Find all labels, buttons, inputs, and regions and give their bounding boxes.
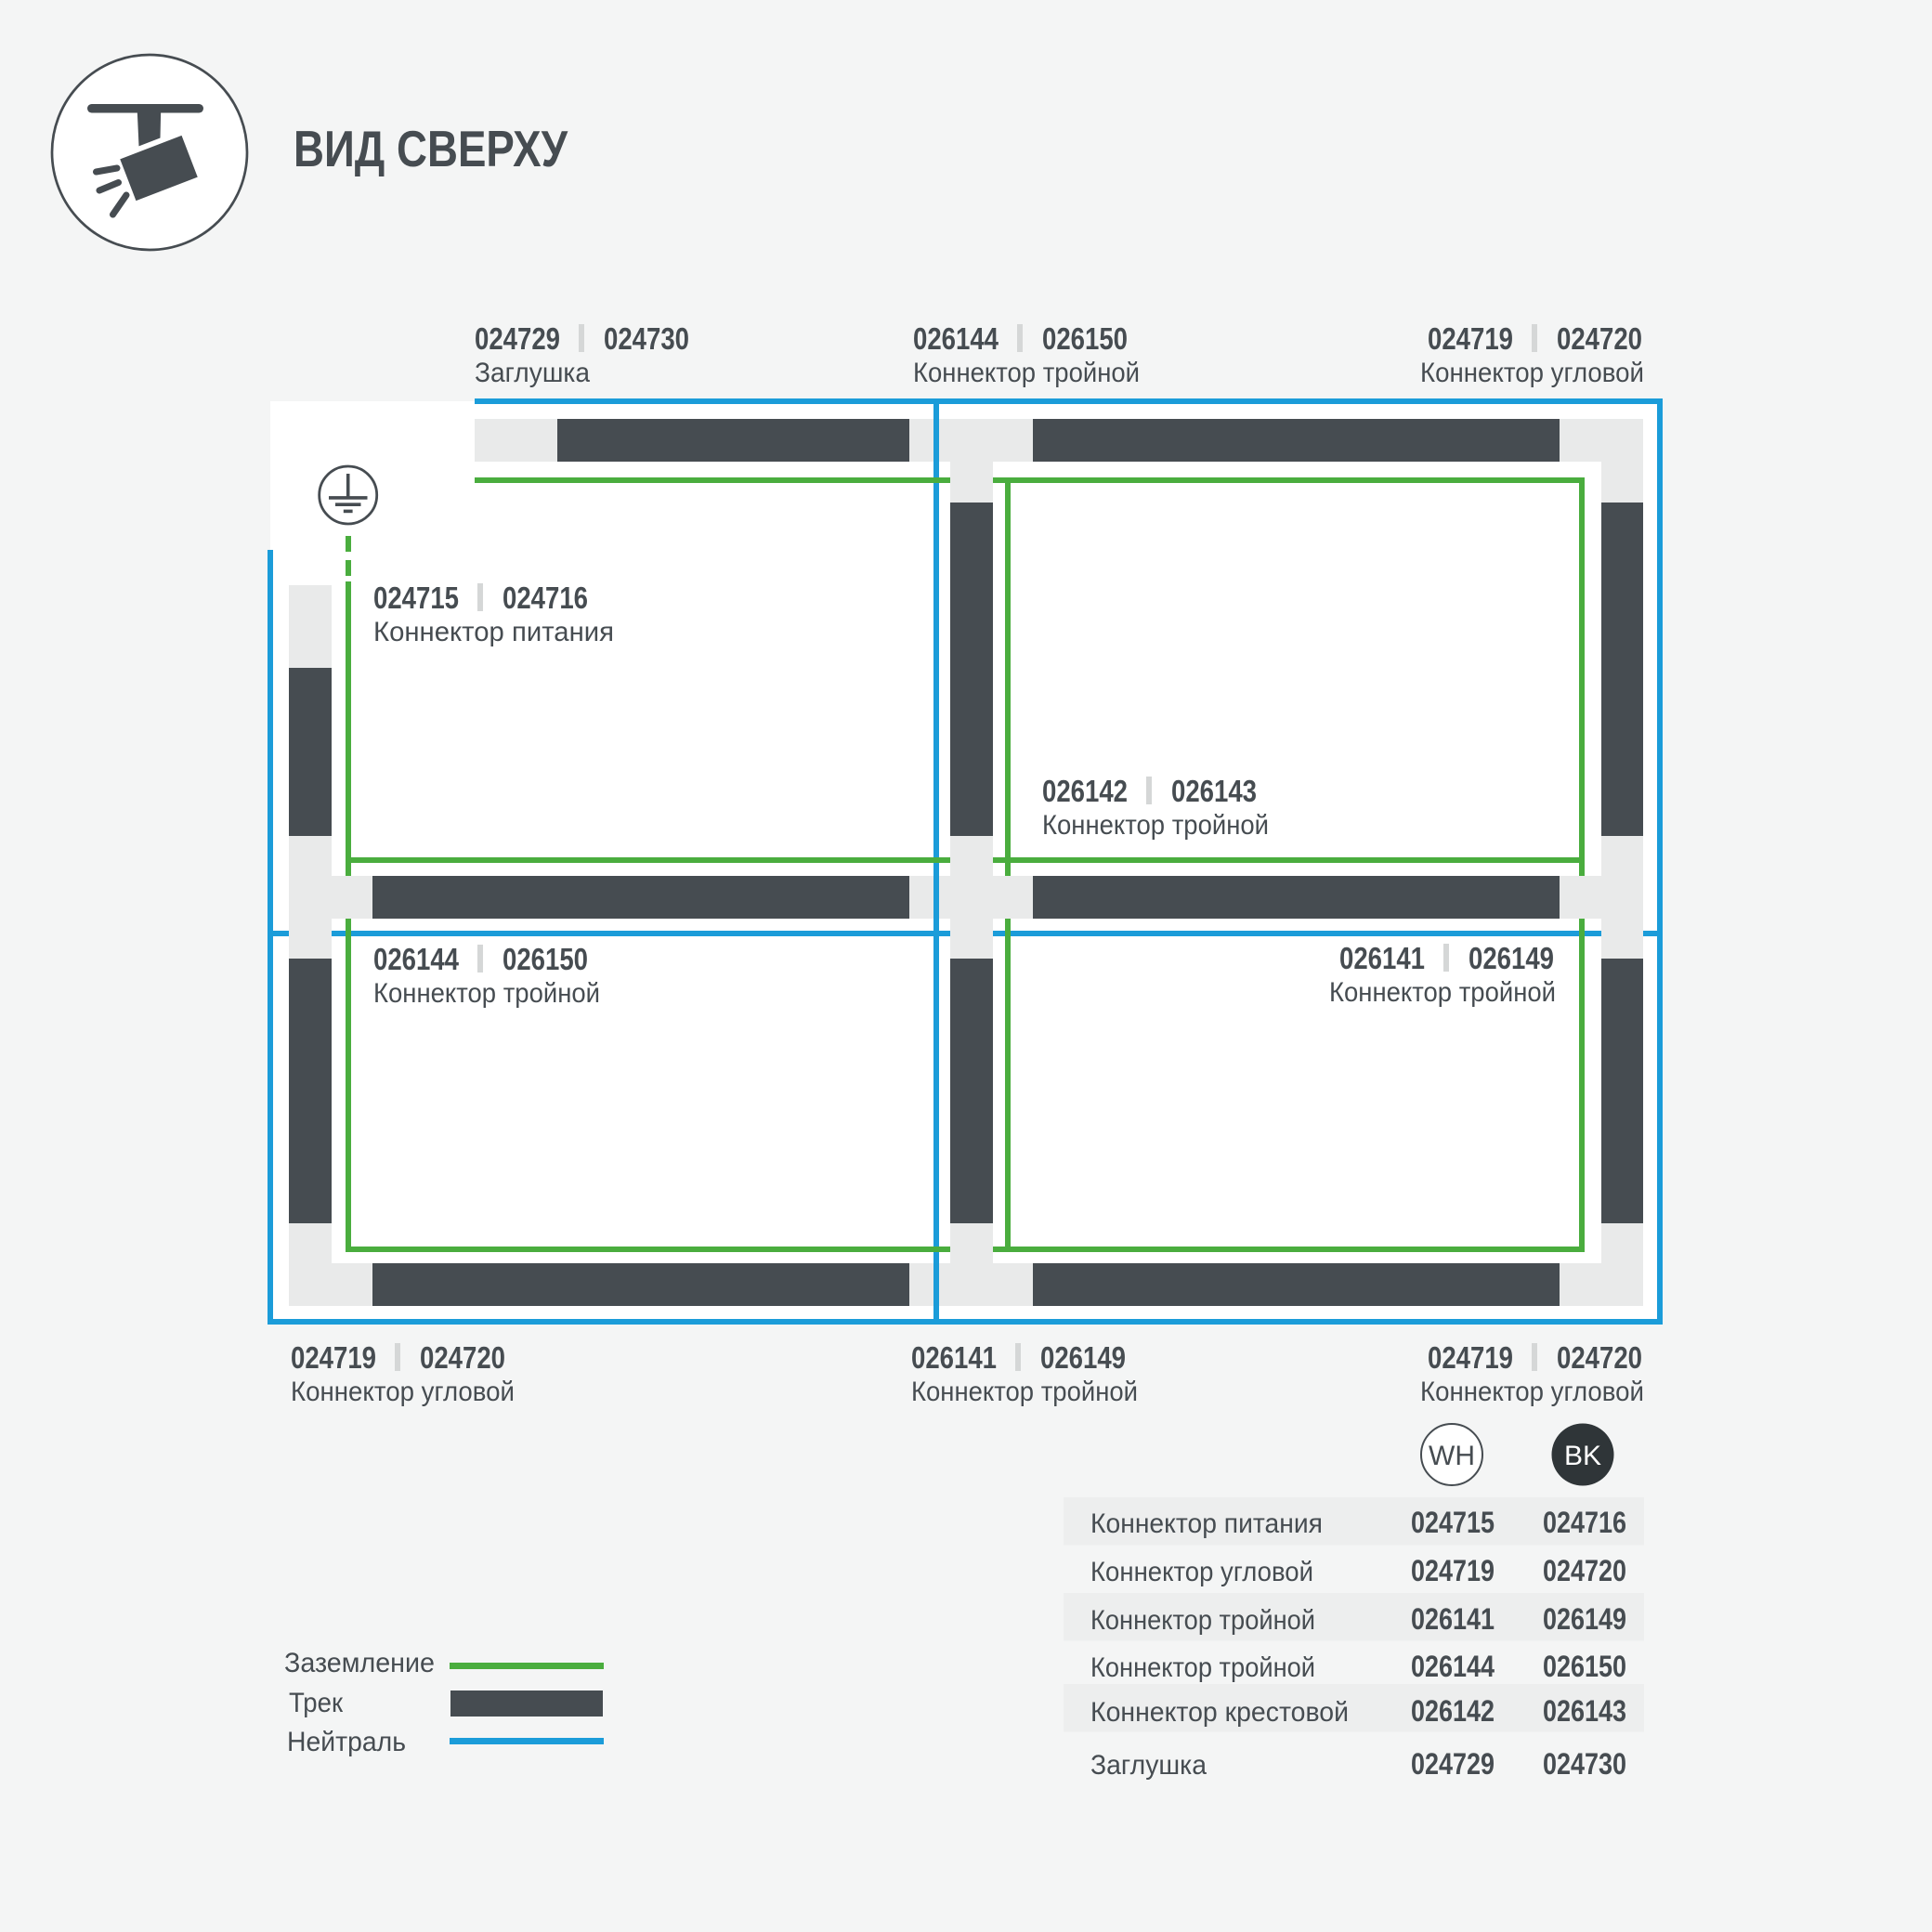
svg-text:024729: 024729: [475, 321, 560, 356]
svg-text:026149: 026149: [1040, 1340, 1126, 1375]
svg-text:BK: BK: [1564, 1441, 1601, 1471]
svg-text:026141: 026141: [1411, 1602, 1495, 1636]
svg-text:026141: 026141: [911, 1340, 997, 1375]
svg-text:024719: 024719: [1411, 1554, 1495, 1587]
svg-text:024720: 024720: [1557, 1340, 1642, 1375]
svg-text:026144: 026144: [1411, 1650, 1495, 1683]
svg-text:026142: 026142: [1042, 774, 1128, 808]
svg-text:Коннектор угловой: Коннектор угловой: [1420, 358, 1644, 388]
svg-text:Коннектор тройной: Коннектор тройной: [373, 978, 600, 1009]
svg-text:026150: 026150: [1543, 1650, 1626, 1683]
svg-text:024729: 024729: [1411, 1747, 1495, 1781]
svg-text:Коннектор тройной: Коннектор тройной: [913, 358, 1140, 388]
svg-text:024720: 024720: [420, 1340, 505, 1375]
svg-text:024715: 024715: [1411, 1506, 1495, 1539]
svg-text:Заглушка: Заглушка: [475, 358, 590, 388]
svg-text:Заземление: Заземление: [284, 1648, 435, 1678]
svg-text:024730: 024730: [604, 321, 689, 356]
svg-text:Коннектор крестовой: Коннектор крестовой: [1090, 1697, 1349, 1728]
svg-text:026144: 026144: [373, 942, 460, 976]
svg-text:Нейтраль: Нейтраль: [287, 1727, 406, 1757]
svg-text:026142: 026142: [1411, 1694, 1495, 1728]
svg-text:024716: 024716: [503, 581, 588, 615]
svg-text:Коннектор питания: Коннектор питания: [1090, 1508, 1323, 1539]
svg-text:026150: 026150: [1042, 321, 1128, 356]
svg-text:024720: 024720: [1557, 321, 1642, 356]
svg-text:Коннектор тройной: Коннектор тройной: [1042, 810, 1269, 841]
svg-text:024716: 024716: [1543, 1506, 1626, 1539]
svg-text:Коннектор угловой: Коннектор угловой: [1420, 1377, 1644, 1407]
svg-text:024730: 024730: [1543, 1747, 1626, 1781]
svg-text:026141: 026141: [1339, 941, 1425, 975]
svg-text:026149: 026149: [1469, 941, 1554, 975]
svg-text:026144: 026144: [913, 321, 999, 356]
svg-text:026143: 026143: [1171, 774, 1257, 808]
svg-text:026143: 026143: [1543, 1694, 1626, 1728]
svg-text:Коннектор тройной: Коннектор тройной: [1329, 977, 1556, 1008]
svg-text:024715: 024715: [373, 581, 459, 615]
svg-text:Коннектор тройной: Коннектор тройной: [911, 1377, 1138, 1407]
svg-text:Заглушка: Заглушка: [1090, 1750, 1207, 1781]
svg-text:Коннектор тройной: Коннектор тройной: [1090, 1652, 1315, 1683]
svg-text:Коннектор угловой: Коннектор угловой: [1090, 1557, 1313, 1587]
svg-text:WH: WH: [1429, 1441, 1475, 1471]
svg-text:ВИД СВЕРХУ: ВИД СВЕРХУ: [294, 120, 568, 177]
svg-text:024719: 024719: [1428, 1340, 1513, 1375]
svg-text:Трек: Трек: [289, 1688, 344, 1718]
svg-text:Коннектор питания: Коннектор питания: [373, 617, 614, 647]
svg-text:024719: 024719: [291, 1340, 376, 1375]
svg-text:026149: 026149: [1543, 1602, 1626, 1636]
svg-text:Коннектор угловой: Коннектор угловой: [291, 1377, 515, 1407]
svg-text:Коннектор тройной: Коннектор тройной: [1090, 1605, 1315, 1636]
svg-text:024720: 024720: [1543, 1554, 1626, 1587]
svg-text:024719: 024719: [1428, 321, 1513, 356]
svg-text:026150: 026150: [503, 942, 588, 976]
